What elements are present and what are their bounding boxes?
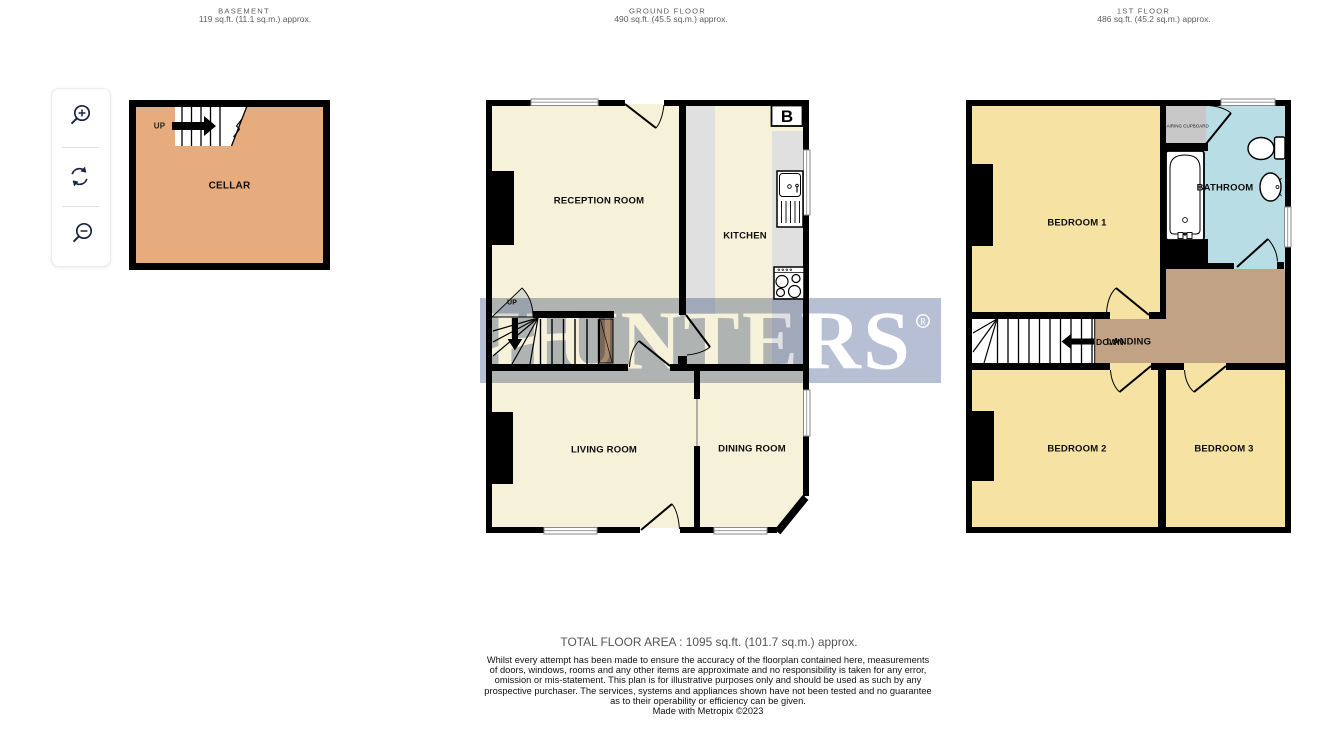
svg-text:R: R [920,317,926,327]
svg-text:B: B [781,107,793,126]
